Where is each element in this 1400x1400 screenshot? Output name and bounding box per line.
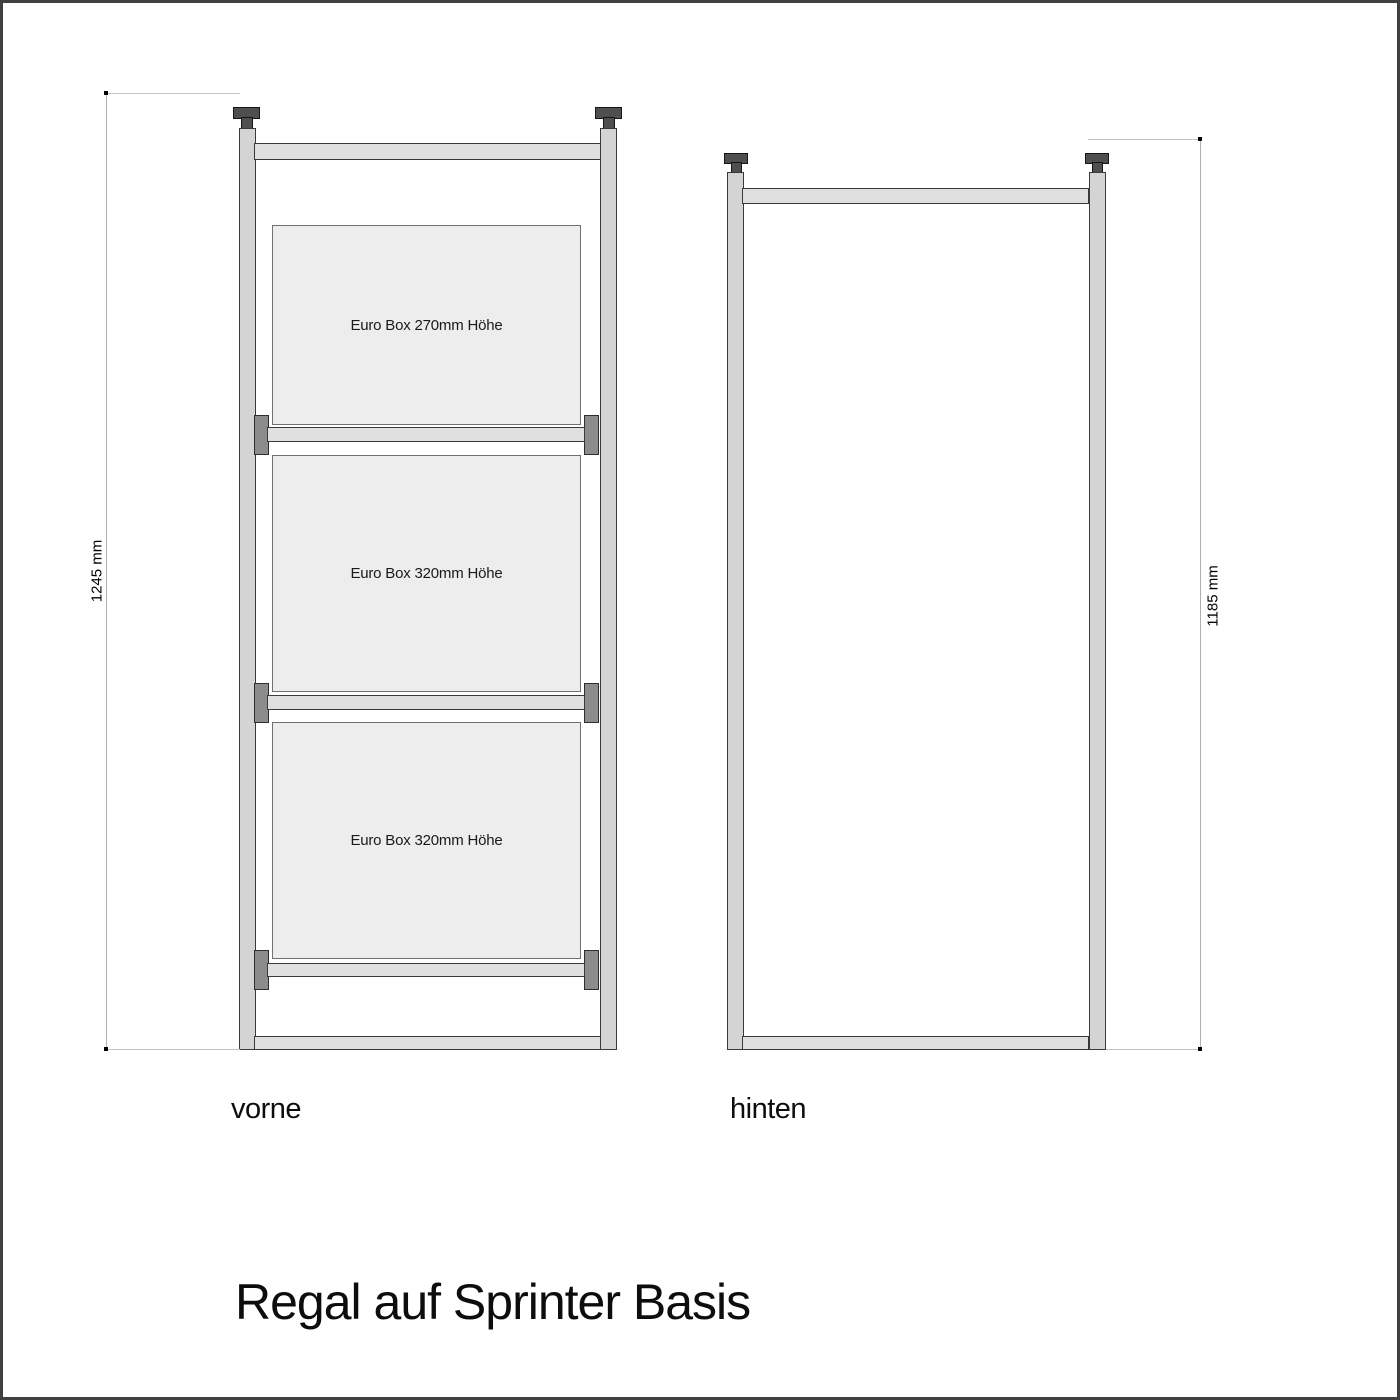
dimension-label: 1245 mm (89, 540, 106, 603)
view-label-front: vorne (231, 1093, 301, 1126)
shelf-bracket (584, 415, 599, 455)
dimension-extension-line (106, 93, 240, 94)
shelf-rail (267, 427, 585, 442)
rear-bottom-crossbar (742, 1036, 1089, 1050)
dimension-extension-line (106, 1049, 240, 1050)
shelf-rail (267, 963, 585, 977)
euro-box: Euro Box 320mm Höhe (272, 722, 581, 959)
dimension-line (106, 93, 107, 1050)
front-top-crossbar (254, 143, 601, 160)
technical-drawing-page: Euro Box 270mm Höhe Euro Box 320mm Höhe … (0, 0, 1400, 1400)
euro-box-label: Euro Box 270mm Höhe (350, 317, 502, 334)
drawing-title: Regal auf Sprinter Basis (235, 1273, 750, 1331)
dimension-tick (1198, 1047, 1202, 1051)
dimension-extension-line (1106, 1049, 1200, 1050)
dimension-extension-line (1088, 139, 1200, 140)
dimension-line (1200, 139, 1201, 1050)
rear-post-left (727, 172, 744, 1050)
euro-box: Euro Box 320mm Höhe (272, 455, 581, 692)
euro-box: Euro Box 270mm Höhe (272, 225, 581, 425)
view-label-rear: hinten (730, 1093, 806, 1126)
dimension-tick (104, 91, 108, 95)
rear-top-crossbar (742, 188, 1089, 204)
front-post-left (239, 128, 256, 1050)
dimension-label: 1185 mm (1205, 565, 1222, 626)
shelf-rail (267, 695, 585, 710)
front-bottom-crossbar (254, 1036, 601, 1050)
front-post-right (600, 128, 617, 1050)
shelf-bracket (584, 950, 599, 990)
rear-post-right (1089, 172, 1106, 1050)
dimension-tick (104, 1047, 108, 1051)
euro-box-label: Euro Box 320mm Höhe (350, 565, 502, 582)
shelf-bracket (584, 683, 599, 723)
dimension-tick (1198, 137, 1202, 141)
euro-box-label: Euro Box 320mm Höhe (350, 832, 502, 849)
